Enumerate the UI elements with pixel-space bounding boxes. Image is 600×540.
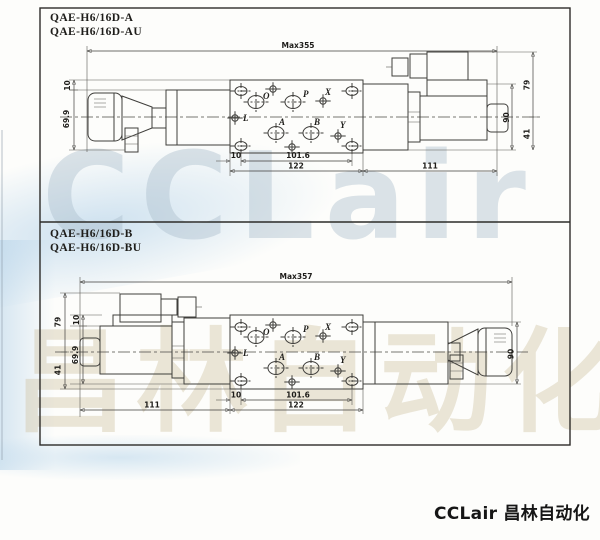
right-dimensions: 90 xyxy=(448,322,521,384)
dim-122: 122 xyxy=(288,401,304,410)
port-label-a: A xyxy=(278,117,285,127)
dim-10-hole: 10 xyxy=(231,151,241,160)
dim-10-hole: 10 xyxy=(231,391,241,400)
hand-knob xyxy=(363,322,512,384)
dim-101-6: 101.6 xyxy=(286,151,310,160)
model-label-au: QAE-H6/16D-AU xyxy=(50,26,142,38)
port-y xyxy=(330,364,345,377)
mounting-hole xyxy=(342,319,363,335)
dim-101-6: 101.6 xyxy=(286,391,310,400)
mounting-hole xyxy=(231,373,252,389)
port-label-p: P xyxy=(303,89,309,99)
dim-90: 90 xyxy=(502,112,511,122)
model-label-a: QAE-H6/16D-A xyxy=(50,12,134,24)
model-label-b: QAE-H6/16D-B xyxy=(50,228,133,240)
scanned-catalog-page: CCLair 昌林自动化 QAE-H6/16D-A QAE-H6/16D-AU … xyxy=(0,0,600,540)
dim-122: 122 xyxy=(288,162,304,171)
solenoid-assembly xyxy=(363,52,508,150)
port-label-o: O xyxy=(263,91,270,101)
port-drain xyxy=(284,375,299,388)
port-p xyxy=(281,92,306,112)
hand-knob xyxy=(88,90,230,152)
port-label-l: L xyxy=(242,113,249,123)
technical-drawing: QAE-H6/16D-A QAE-H6/16D-AU Max355 xyxy=(0,0,600,540)
mounting-hole xyxy=(342,83,363,99)
port-p xyxy=(281,327,306,347)
dim-69-9: 69.9 xyxy=(62,110,71,129)
port-label-x: X xyxy=(324,87,332,97)
port-label-a: A xyxy=(278,352,285,362)
mounting-hole xyxy=(342,138,363,154)
port-label-y: Y xyxy=(340,355,347,365)
dim-69-9: 69.9 xyxy=(71,346,80,365)
dim-10: 10 xyxy=(72,315,81,325)
solenoid-assembly xyxy=(80,294,230,384)
mounting-hole xyxy=(342,373,363,389)
model-label-bu: QAE-H6/16D-BU xyxy=(50,242,142,254)
dim-111: 111 xyxy=(144,401,160,410)
dim-max355: Max355 xyxy=(281,41,314,50)
dim-41: 41 xyxy=(54,365,63,375)
port-label-l: L xyxy=(242,348,249,358)
dim-79: 79 xyxy=(523,80,532,90)
panel-qae-h616d-a: QAE-H6/16D-A QAE-H6/16D-AU Max355 xyxy=(50,12,540,176)
panel-qae-h616d-b: QAE-H6/16D-B QAE-H6/16D-BU Max357 xyxy=(50,228,528,417)
port-label-p: P xyxy=(303,324,309,334)
footer-brand-text: CCLair 昌林自动化 xyxy=(434,499,590,524)
dim-10: 10 xyxy=(63,80,72,90)
drawing-frame xyxy=(40,8,570,445)
port-y xyxy=(330,129,345,142)
dim-41: 41 xyxy=(523,129,532,139)
dim-79: 79 xyxy=(54,317,63,327)
port-label-x: X xyxy=(324,322,332,332)
port-label-y: Y xyxy=(340,120,347,130)
bottom-dimensions: 10 101.6 122 111 xyxy=(216,151,497,176)
mounting-hole xyxy=(231,319,252,335)
port-label-b: B xyxy=(313,117,320,127)
port-label-o: O xyxy=(263,327,270,337)
dim-max357: Max357 xyxy=(279,272,312,281)
bottom-dimensions: 10 101.6 122 111 xyxy=(80,387,363,414)
port-label-b: B xyxy=(313,352,320,362)
dim-111: 111 xyxy=(422,162,438,171)
mounting-hole xyxy=(231,83,252,99)
dim-90: 90 xyxy=(507,349,516,359)
